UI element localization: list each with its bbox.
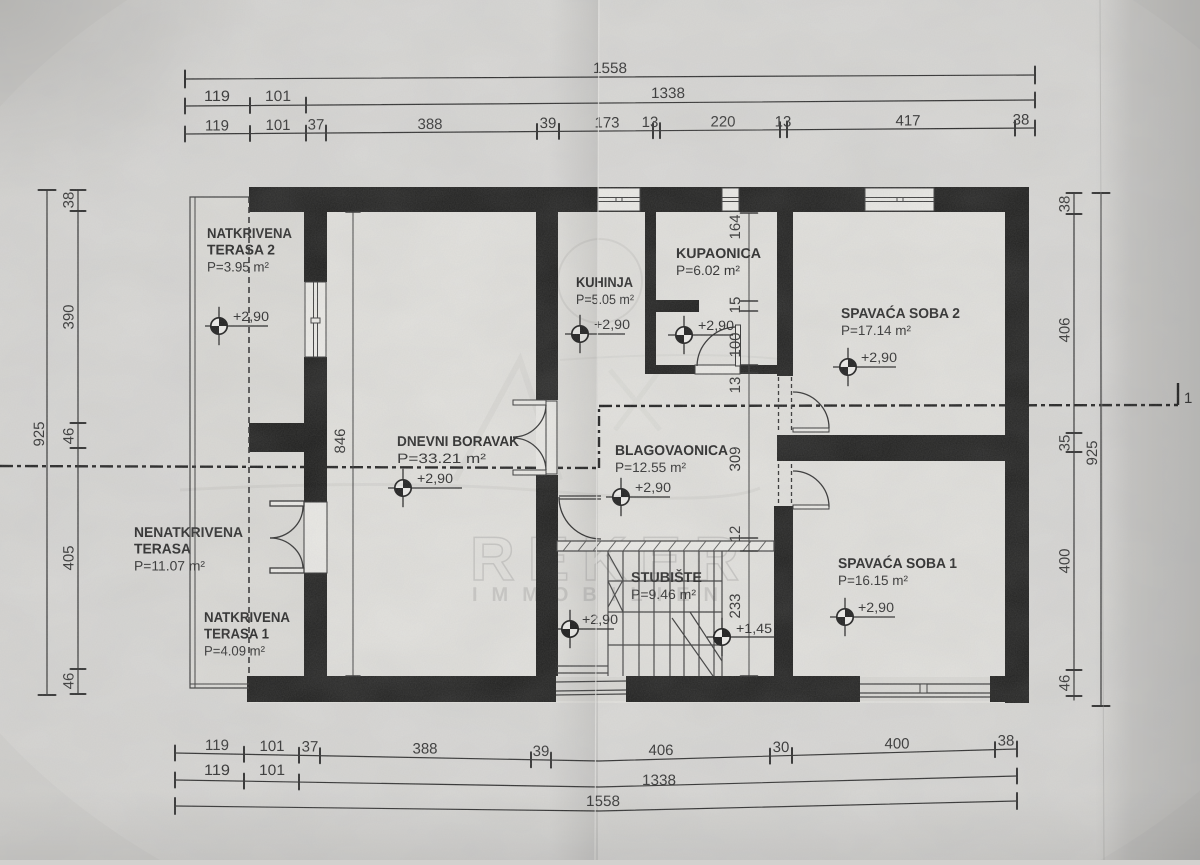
svg-text:SPAVAĆA SOBA 1: SPAVAĆA SOBA 1	[838, 555, 957, 572]
svg-text:846: 846	[332, 428, 349, 453]
svg-text:164: 164	[727, 214, 744, 239]
svg-text:100: 100	[727, 332, 744, 357]
svg-text:P=9.46 m²: P=9.46 m²	[631, 587, 696, 602]
svg-text:+2,90: +2,90	[861, 350, 897, 365]
svg-text:P=4.09 m²: P=4.09 m²	[204, 644, 265, 659]
svg-text:P=3.95 m²: P=3.95 m²	[207, 260, 269, 275]
svg-text:P=33.21 m²: P=33.21 m²	[397, 451, 487, 466]
svg-text:37: 37	[308, 117, 325, 134]
svg-text:BLAGOVAONICA: BLAGOVAONICA	[615, 443, 728, 459]
svg-text:400: 400	[1057, 548, 1074, 573]
svg-text:SPAVAĆA SOBA 2: SPAVAĆA SOBA 2	[841, 305, 960, 322]
svg-text:13: 13	[727, 377, 744, 394]
svg-text:+1,45: +1,45	[736, 621, 772, 636]
svg-text:+2,90: +2,90	[594, 317, 630, 332]
svg-text:+2,90: +2,90	[635, 480, 671, 495]
svg-text:TERASA 2: TERASA 2	[207, 243, 275, 259]
svg-text:101: 101	[259, 762, 285, 779]
svg-text:12: 12	[727, 526, 744, 543]
svg-text:390: 390	[61, 304, 78, 329]
svg-text:39: 39	[533, 743, 550, 760]
svg-text:400: 400	[884, 735, 909, 752]
svg-text:P=16.15 m²: P=16.15 m²	[838, 573, 908, 588]
svg-text:405: 405	[61, 545, 78, 570]
svg-text:388: 388	[417, 116, 442, 133]
svg-text:38: 38	[1013, 112, 1030, 129]
svg-text:13: 13	[775, 113, 792, 130]
svg-text:309: 309	[727, 446, 744, 471]
svg-text:417: 417	[895, 112, 920, 129]
svg-text:NENATKRIVENA: NENATKRIVENA	[134, 525, 243, 541]
svg-text:233: 233	[727, 593, 744, 618]
svg-text:+2,90: +2,90	[233, 309, 269, 324]
svg-text:101: 101	[265, 117, 290, 134]
svg-text:119: 119	[204, 762, 230, 779]
svg-text:STUBIŠTE: STUBIŠTE	[631, 569, 702, 586]
svg-text:220: 220	[710, 114, 735, 131]
svg-text:DNEVNI BORAVAK: DNEVNI BORAVAK	[397, 434, 520, 450]
svg-text:TERASA 1: TERASA 1	[204, 627, 269, 643]
svg-text:1338: 1338	[651, 85, 685, 102]
svg-text:35: 35	[1057, 435, 1074, 452]
svg-text:NATKRIVENA: NATKRIVENA	[207, 226, 292, 242]
svg-text:P=17.14 m²: P=17.14 m²	[841, 323, 911, 338]
svg-text:P=6.02 m²: P=6.02 m²	[676, 263, 740, 278]
svg-text:1338: 1338	[642, 772, 676, 789]
svg-text:15: 15	[727, 297, 744, 314]
svg-text:13: 13	[642, 114, 659, 131]
svg-text:30: 30	[773, 739, 790, 756]
svg-text:388: 388	[412, 741, 437, 758]
svg-text:TERASA: TERASA	[134, 542, 191, 558]
svg-text:P=11.07 m²: P=11.07 m²	[134, 559, 205, 574]
svg-text:46: 46	[61, 673, 78, 690]
svg-text:38: 38	[998, 732, 1015, 749]
svg-text:406: 406	[1057, 317, 1074, 342]
svg-text:925: 925	[31, 421, 48, 446]
svg-text:38: 38	[1057, 196, 1074, 213]
svg-text:101: 101	[259, 738, 284, 755]
svg-text:P=12.55 m²: P=12.55 m²	[615, 460, 686, 475]
svg-text:119: 119	[205, 737, 229, 754]
svg-text:37: 37	[302, 739, 319, 756]
svg-text:101: 101	[265, 88, 291, 105]
svg-text:46: 46	[61, 428, 78, 445]
svg-text:406: 406	[648, 742, 673, 759]
svg-text:+2,90: +2,90	[698, 318, 734, 333]
svg-text:KUPAONICA: KUPAONICA	[676, 246, 761, 262]
svg-text:+2,90: +2,90	[858, 600, 894, 615]
svg-text:46: 46	[1057, 675, 1074, 692]
svg-text:NATKRIVENA: NATKRIVENA	[204, 610, 290, 626]
